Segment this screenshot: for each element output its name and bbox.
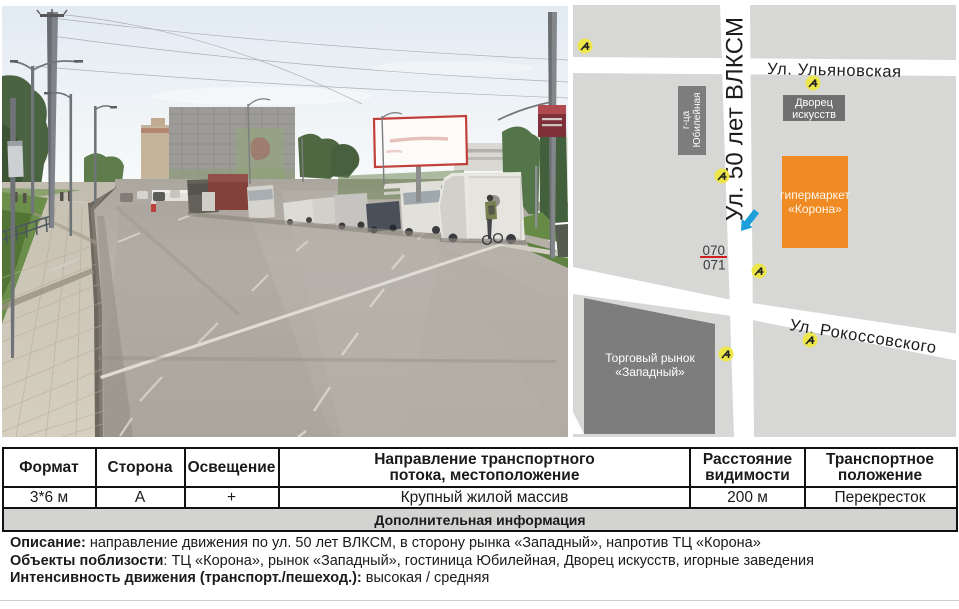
svg-text:Ул. 50 лет ВЛКСМ: Ул. 50 лет ВЛКСМ xyxy=(722,17,749,221)
svg-text:Юбилейная: Юбилейная xyxy=(691,93,703,148)
svg-text:Ул. Ульяновская: Ул. Ульяновская xyxy=(767,60,901,81)
svg-text:искусств: искусств xyxy=(792,109,836,121)
svg-text:071: 071 xyxy=(703,258,726,273)
svg-text:Торговый рынок: Торговый рынок xyxy=(605,351,695,365)
svg-text:070: 070 xyxy=(702,243,725,258)
svg-text:Дворец: Дворец xyxy=(795,97,834,109)
svg-text:«Западный»: «Западный» xyxy=(615,365,685,379)
svg-text:г-ца: г-ца xyxy=(681,110,692,129)
svg-text:«Корона»: «Корона» xyxy=(788,202,842,216)
svg-text:гипермаркет: гипермаркет xyxy=(780,188,850,202)
